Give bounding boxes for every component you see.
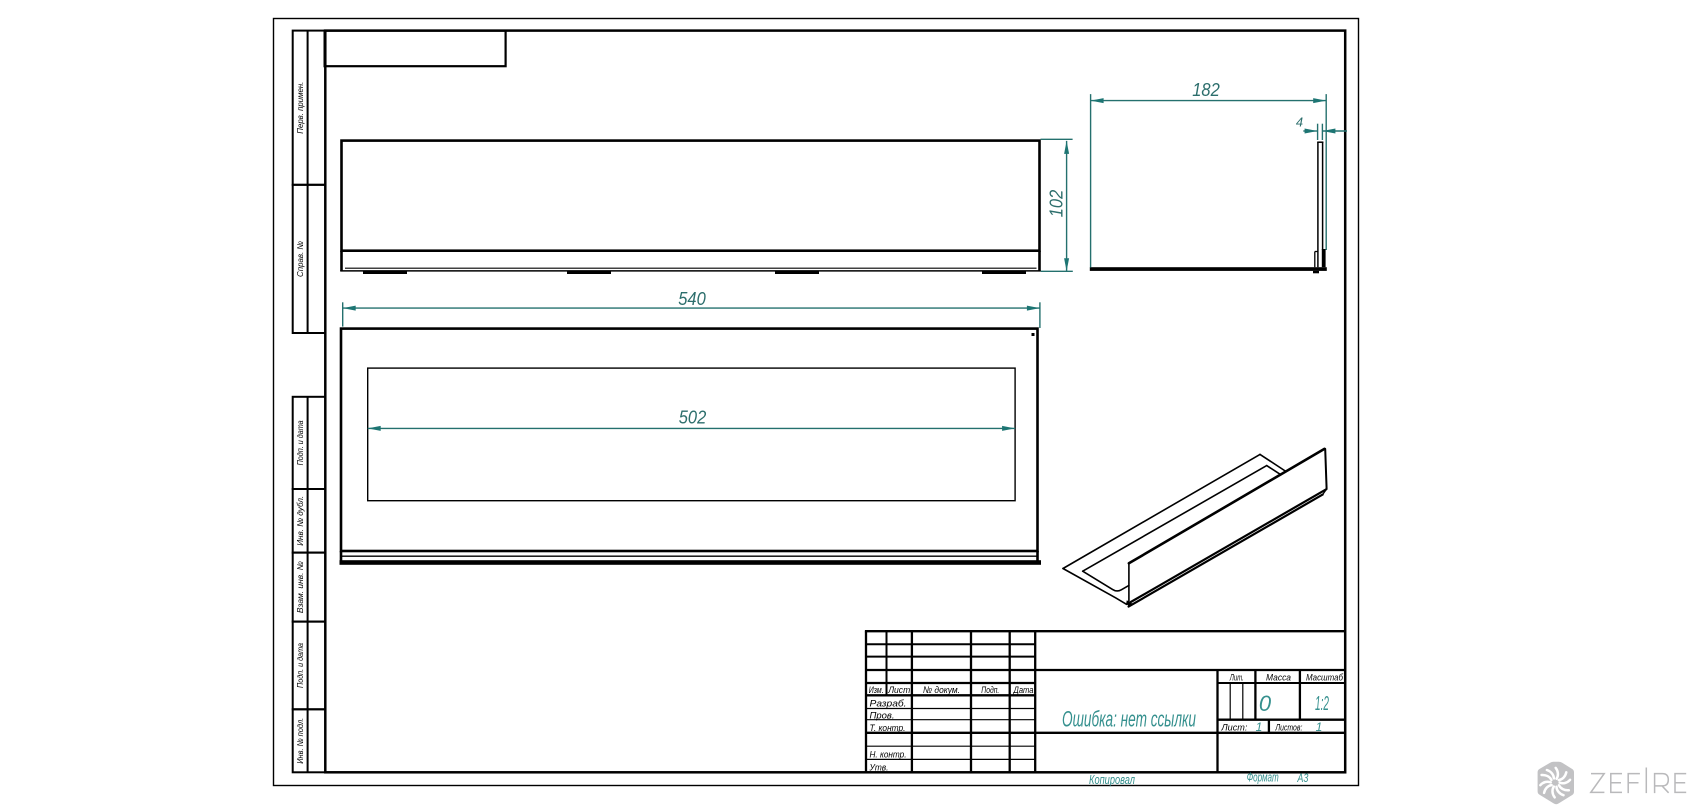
svg-text:Подп. и дата: Подп. и дата	[295, 420, 305, 465]
svg-text:Инв. № подл.: Инв. № подл.	[295, 718, 305, 764]
svg-text:Справ. №: Справ. №	[295, 241, 305, 277]
svg-text:Изм.: Изм.	[869, 685, 884, 696]
svg-text:0: 0	[1259, 691, 1272, 716]
svg-text:Утв.: Утв.	[869, 763, 889, 774]
svg-text:№ докум.: № докум.	[923, 685, 960, 696]
svg-text:А3: А3	[1297, 771, 1309, 785]
svg-text:Листов:: Листов:	[1275, 723, 1303, 734]
svg-text:540: 540	[678, 289, 706, 309]
svg-text:Т. контр.: Т. контр.	[870, 723, 906, 734]
svg-text:Разраб.: Разраб.	[870, 699, 907, 710]
svg-text:Лит.: Лит.	[1229, 673, 1244, 684]
svg-text:502: 502	[679, 408, 707, 428]
svg-text:Инв. № дубл.: Инв. № дубл.	[295, 496, 305, 546]
svg-text:1: 1	[1256, 720, 1263, 734]
svg-text:Ошибка: нет ссылки: Ошибка: нет ссылки	[1062, 707, 1196, 732]
svg-text:Масштаб: Масштаб	[1306, 673, 1343, 684]
svg-text:Взам. инв. №: Взам. инв. №	[295, 561, 305, 613]
svg-text:Пров.: Пров.	[870, 711, 895, 722]
svg-text:Масса: Масса	[1266, 673, 1291, 684]
svg-text:1:2: 1:2	[1315, 693, 1329, 715]
svg-text:Лист:: Лист:	[1220, 723, 1247, 734]
svg-text:Формат: Формат	[1247, 771, 1279, 785]
svg-text:102: 102	[1047, 190, 1067, 218]
svg-text:182: 182	[1192, 80, 1220, 100]
svg-text:4: 4	[1296, 115, 1303, 130]
svg-text:Подп. и дата: Подп. и дата	[295, 643, 305, 688]
svg-text:Н. контр.: Н. контр.	[870, 750, 907, 761]
svg-text:Лист: Лист	[887, 685, 910, 696]
svg-text:Копировал: Копировал	[1089, 773, 1135, 787]
svg-text:1: 1	[1316, 720, 1323, 734]
svg-text:Подп.: Подп.	[981, 685, 999, 696]
svg-text:Дата: Дата	[1013, 685, 1034, 696]
svg-text:Перв. примен.: Перв. примен.	[295, 82, 305, 134]
